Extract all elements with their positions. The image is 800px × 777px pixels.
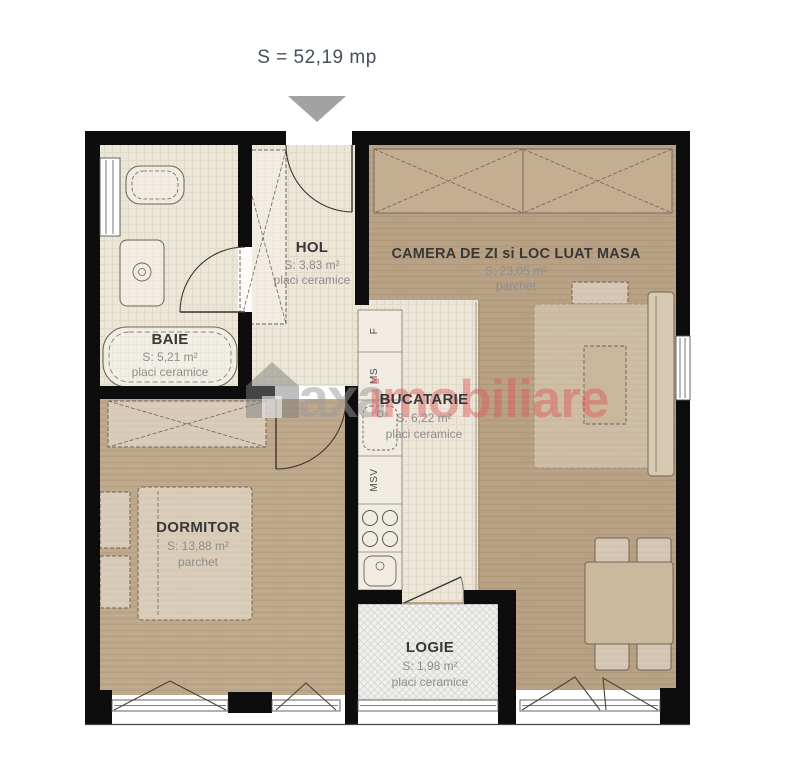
baie-hol-wall-bottom [238, 312, 252, 386]
total-area-title: S = 52,19 mp [257, 47, 377, 68]
hol-living-wall [355, 145, 369, 305]
top-wall-left [85, 131, 286, 145]
right-wall-bottom [676, 400, 690, 725]
camera-name: CAMERA DE ZI si LOC LUAT MASA [391, 246, 640, 262]
top-wall-right [352, 131, 690, 145]
dormitor-name: DORMITOR [156, 519, 240, 536]
bottom-post-corner-right [660, 688, 690, 725]
logie-left-wall [345, 590, 358, 725]
nightstand-bottom [100, 556, 130, 608]
left-wall [85, 131, 100, 725]
right-wall-top [676, 131, 690, 336]
bucatarie-floor-type: placi ceramice [386, 427, 463, 441]
dormitor-floor-type: parchet [178, 555, 219, 569]
bottom-post-dormitor [228, 692, 272, 713]
camera-area: S: 23,05 m² [485, 264, 547, 278]
logie-name: LOGIE [406, 639, 454, 656]
floor-plan-canvas: S = 52,19 mp [0, 0, 800, 777]
baie-area: S: 5,21 m² [142, 350, 197, 364]
hol-name: HOL [296, 239, 329, 256]
nightstand-top [100, 492, 130, 548]
baie-window [100, 158, 120, 236]
logie-window [358, 700, 498, 711]
bedroom-wardrobe [108, 401, 266, 447]
logie-right-wall [498, 600, 516, 725]
floor-plan-page: S = 52,19 mp [0, 0, 800, 777]
bucatarie-area: S: 6,22 m² [396, 411, 451, 425]
hol-area: S: 3,83 m² [284, 258, 339, 272]
bottom-post-corner-left [85, 690, 112, 725]
kitchen-counter [358, 310, 402, 590]
hol-floor-type: placi ceramice [274, 273, 351, 287]
logie-floor-type: placi ceramice [392, 675, 469, 689]
baie-hol-wall-top [238, 145, 252, 247]
baie-name: BAIE [151, 331, 188, 348]
sofa [648, 292, 674, 476]
camera-floor-type: parchet [496, 279, 537, 293]
living-right-window [676, 336, 690, 400]
logie-area: S: 1,98 m² [402, 659, 457, 673]
living-wardrobe-right [523, 149, 672, 213]
living-wardrobe-left [374, 149, 523, 213]
fridge-label: F [369, 328, 380, 335]
dormitor-area: S: 13,88 m² [167, 539, 229, 553]
bucatarie-name: BUCATARIE [380, 391, 469, 408]
dining-table [585, 562, 673, 644]
watermark-logo-notch [262, 396, 282, 418]
dishwasher-label: MSV [369, 468, 380, 491]
tv-cabinet [572, 282, 628, 304]
baie-floor-type: placi ceramice [132, 365, 209, 379]
bathroom-sink [126, 166, 184, 204]
washing-machine [120, 240, 164, 306]
bed [138, 487, 252, 620]
entrance-arrow-icon [288, 96, 346, 122]
